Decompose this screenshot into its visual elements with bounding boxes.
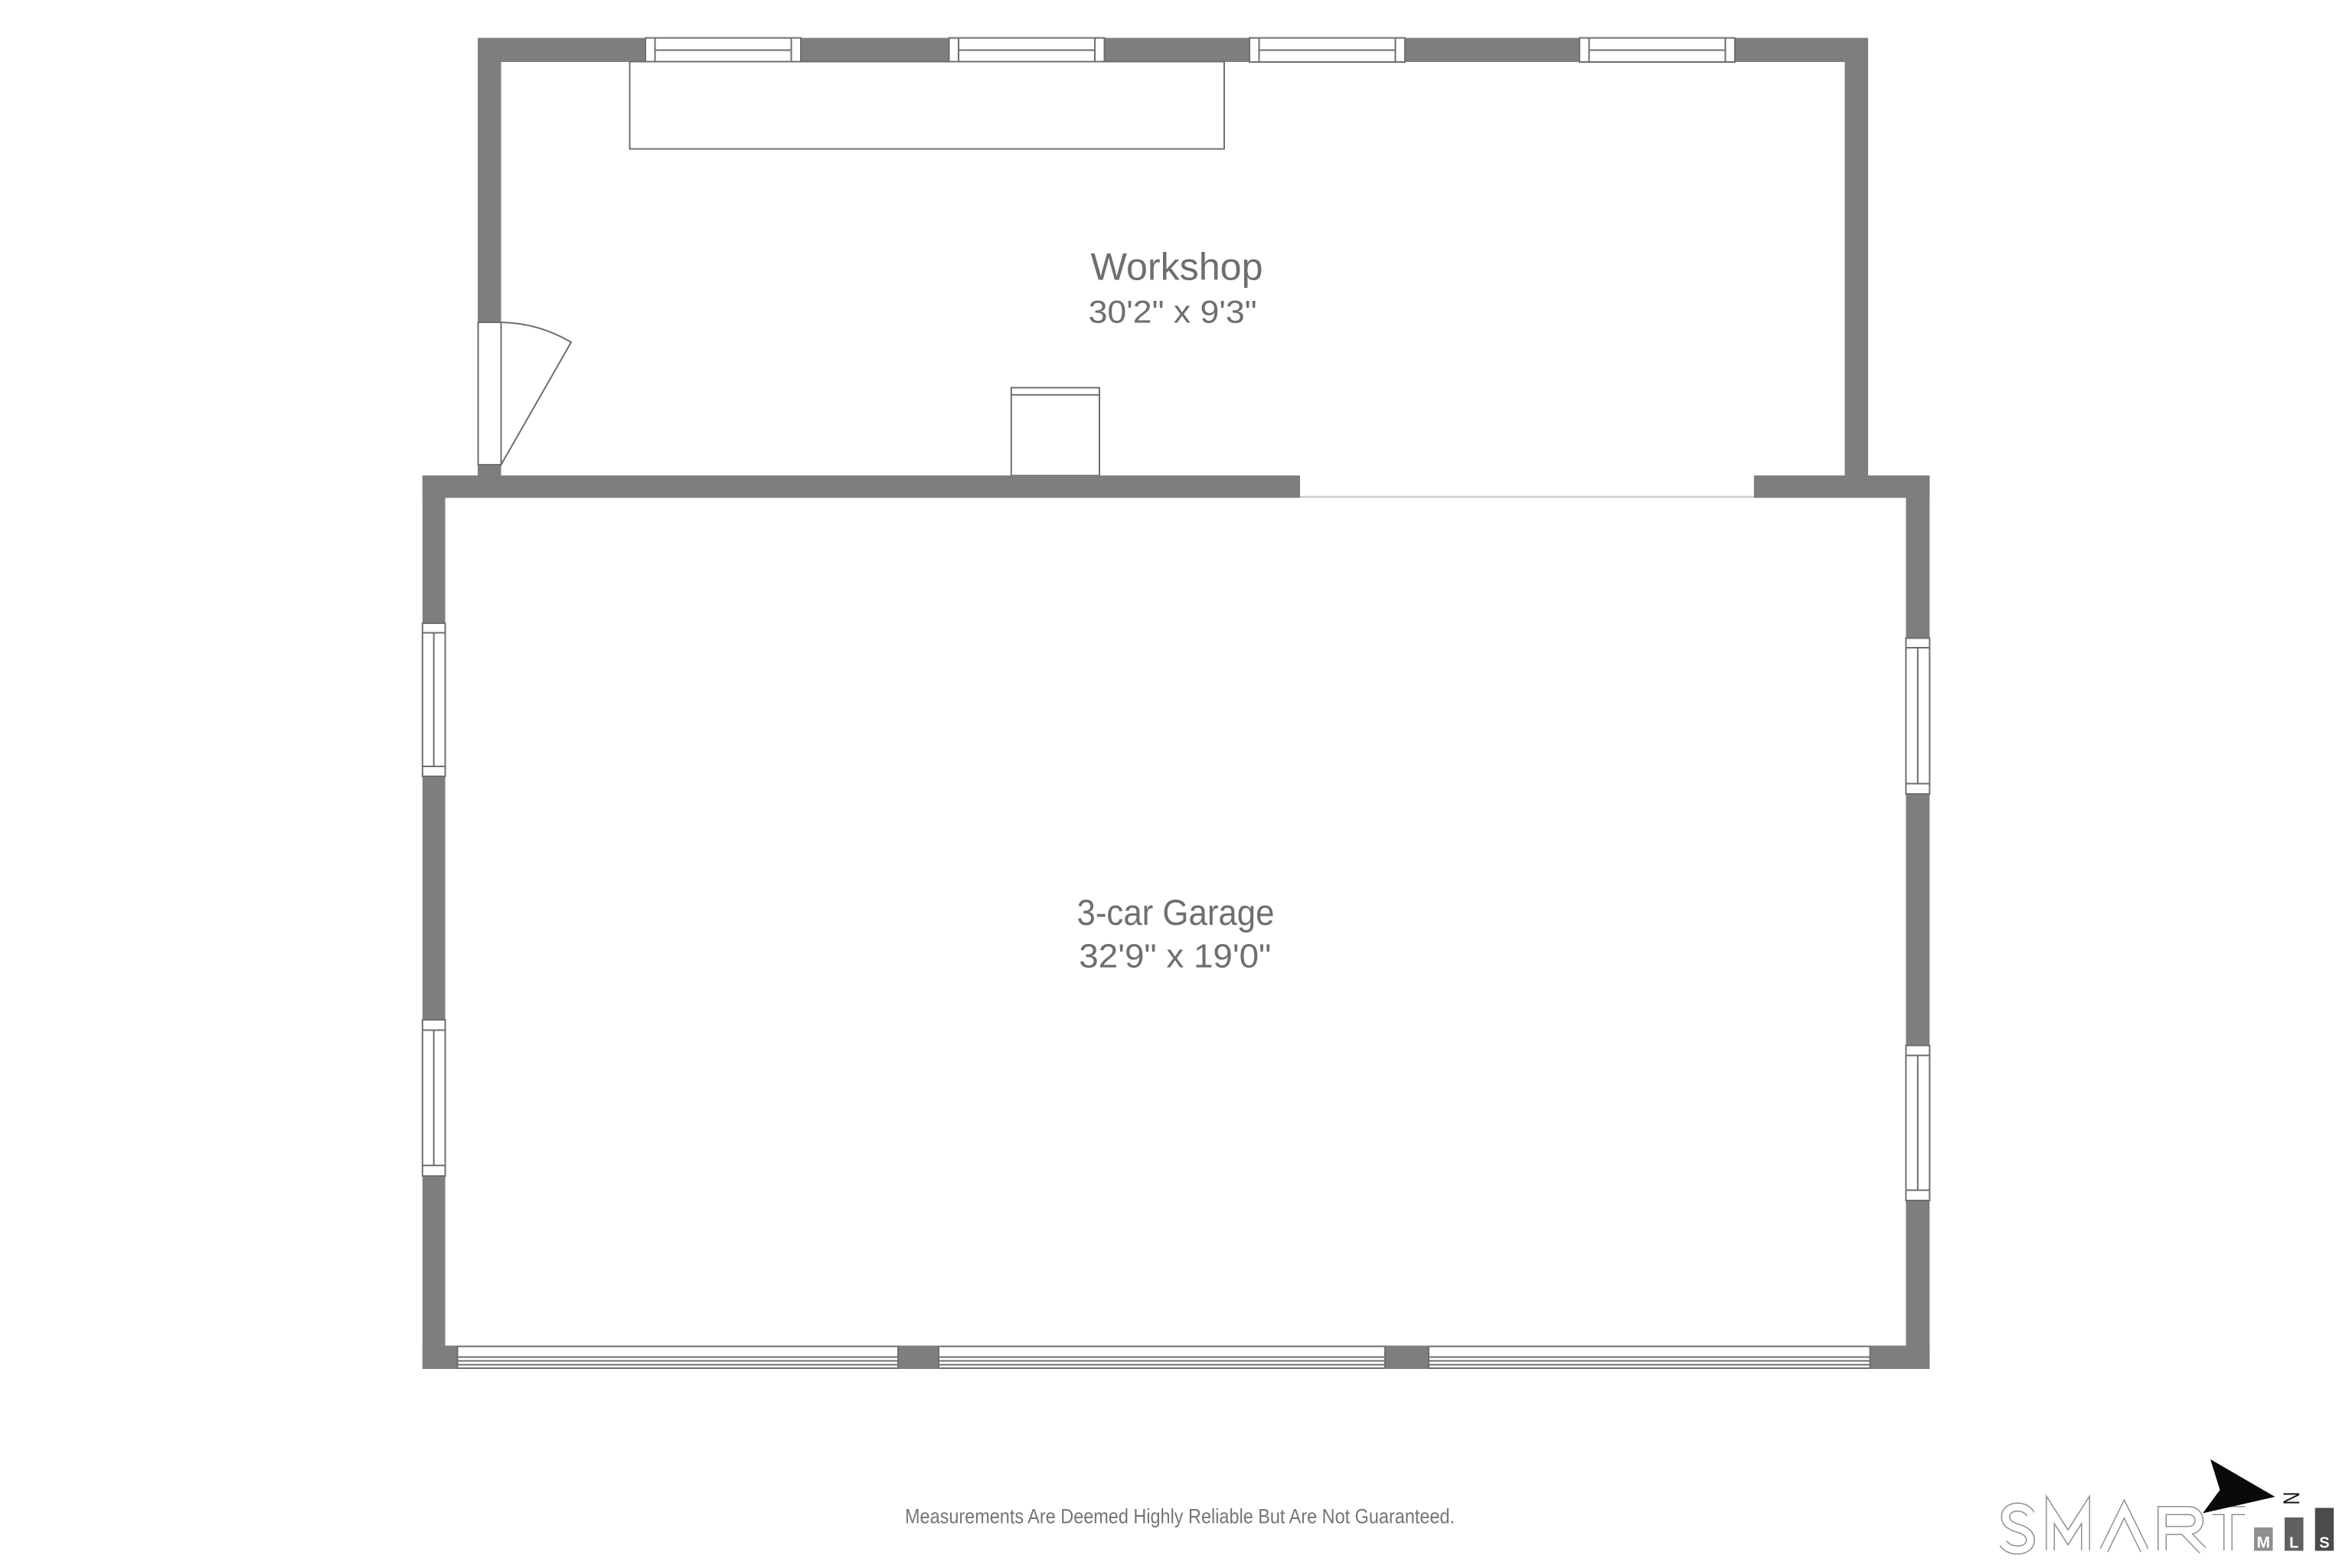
- svg-text:32'9" x 19'0": 32'9" x 19'0": [1079, 938, 1271, 975]
- svg-text:M: M: [2256, 1534, 2270, 1552]
- svg-text:3-car Garage: 3-car Garage: [1077, 893, 1275, 933]
- svg-text:N: N: [2278, 1492, 2304, 1505]
- svg-text:S: S: [2319, 1535, 2329, 1552]
- svg-text:L: L: [2289, 1535, 2298, 1552]
- svg-text:30'2" x 9'3": 30'2" x 9'3": [1089, 294, 1257, 330]
- svg-text:Measurements Are Deemed Highly: Measurements Are Deemed Highly Reliable …: [905, 1505, 1455, 1528]
- svg-text:Workshop: Workshop: [1091, 245, 1263, 289]
